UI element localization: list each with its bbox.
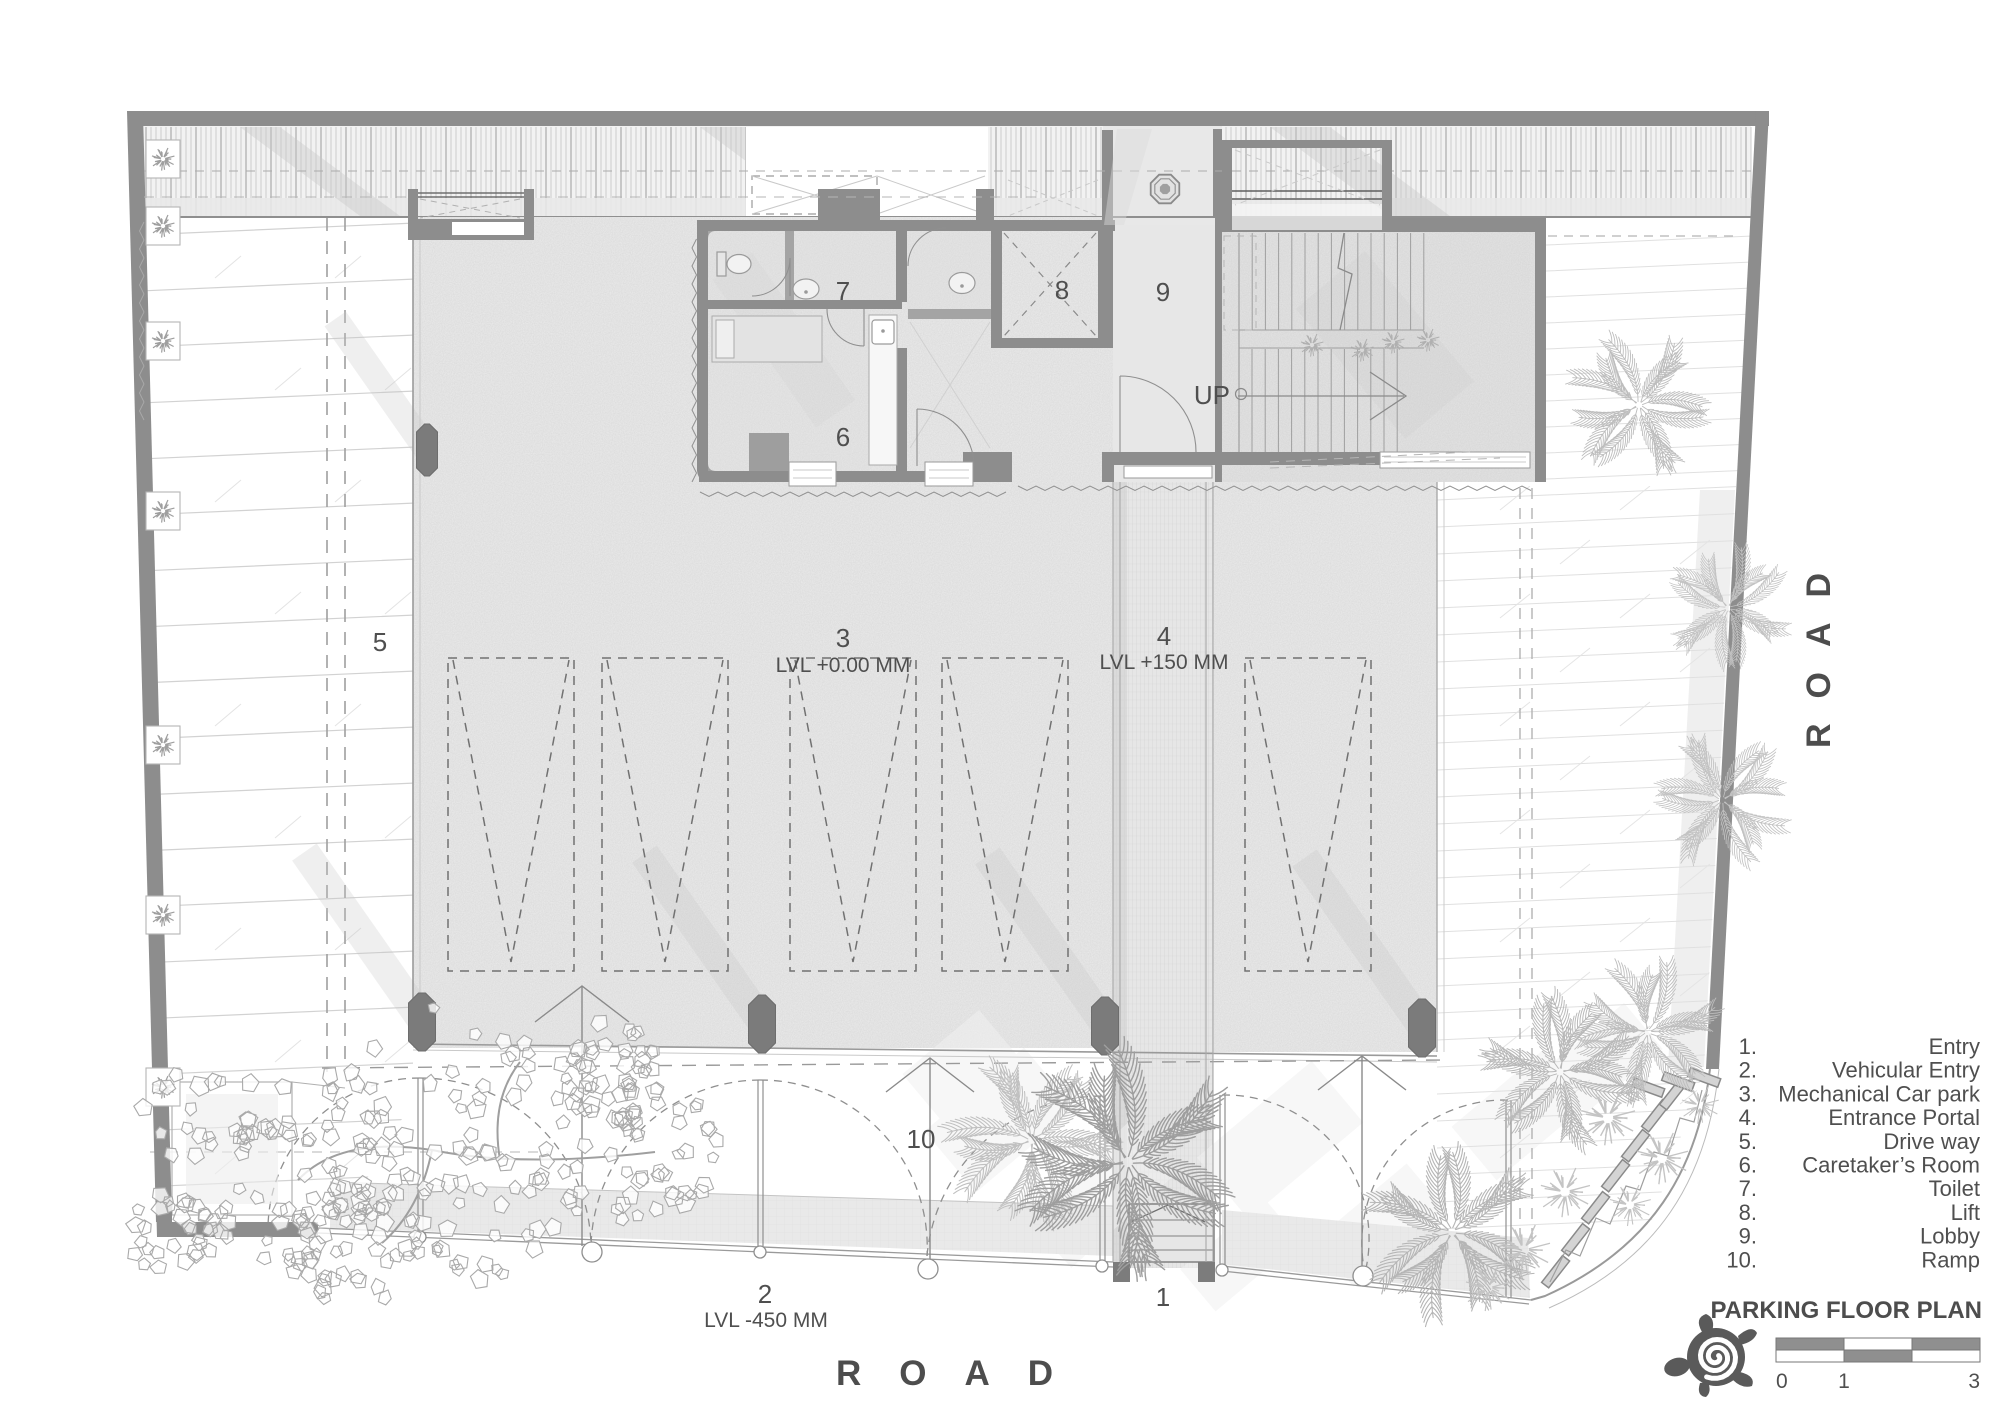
svg-text:7: 7 — [836, 276, 850, 306]
svg-text:Entry: Entry — [1929, 1034, 1980, 1059]
svg-text:PARKING FLOOR PLAN: PARKING FLOOR PLAN — [1710, 1297, 1982, 1324]
svg-text:2: 2 — [758, 1279, 772, 1309]
svg-text:0: 0 — [1776, 1370, 1788, 1393]
svg-text:10.: 10. — [1726, 1247, 1757, 1272]
svg-text:7.: 7. — [1739, 1176, 1757, 1201]
svg-text:Drive way: Drive way — [1883, 1129, 1980, 1154]
svg-text:5: 5 — [373, 627, 387, 657]
svg-text:Ramp: Ramp — [1921, 1247, 1980, 1272]
svg-text:6.: 6. — [1739, 1153, 1757, 1178]
svg-text:Vehicular Entry: Vehicular Entry — [1832, 1058, 1980, 1083]
svg-text:10: 10 — [907, 1124, 936, 1154]
svg-text:1: 1 — [1838, 1370, 1850, 1393]
svg-text:9: 9 — [1156, 277, 1170, 307]
svg-text:Caretaker’s Room: Caretaker’s Room — [1802, 1153, 1980, 1178]
svg-text:1: 1 — [1156, 1282, 1170, 1312]
svg-text:5.: 5. — [1739, 1129, 1757, 1154]
svg-text:1.: 1. — [1739, 1034, 1757, 1059]
svg-text:4: 4 — [1157, 621, 1171, 651]
svg-text:8.: 8. — [1739, 1200, 1757, 1225]
svg-text:3.: 3. — [1739, 1081, 1757, 1106]
svg-text:UP: UP — [1194, 380, 1230, 410]
svg-text:ROAD: ROAD — [836, 1354, 1091, 1393]
svg-text:Toilet: Toilet — [1929, 1176, 1980, 1201]
svg-text:Lobby: Lobby — [1920, 1224, 1980, 1249]
svg-text:Lift: Lift — [1951, 1200, 1980, 1225]
svg-text:Entrance Portal: Entrance Portal — [1828, 1105, 1980, 1130]
svg-text:LVL -450 MM: LVL -450 MM — [704, 1309, 828, 1332]
svg-text:Mechanical Car park: Mechanical Car park — [1778, 1081, 1981, 1106]
svg-text:LVL +0.00 MM: LVL +0.00 MM — [776, 654, 911, 677]
svg-text:LVL +150 MM: LVL +150 MM — [1100, 651, 1229, 674]
svg-text:8: 8 — [1055, 275, 1069, 305]
svg-text:4.: 4. — [1739, 1105, 1757, 1130]
svg-text:ROAD: ROAD — [1800, 548, 1838, 748]
svg-text:6: 6 — [836, 422, 850, 452]
svg-text:2.: 2. — [1739, 1058, 1757, 1083]
svg-text:9.: 9. — [1739, 1224, 1757, 1249]
svg-text:3: 3 — [1968, 1370, 1980, 1393]
svg-text:3: 3 — [836, 623, 850, 653]
